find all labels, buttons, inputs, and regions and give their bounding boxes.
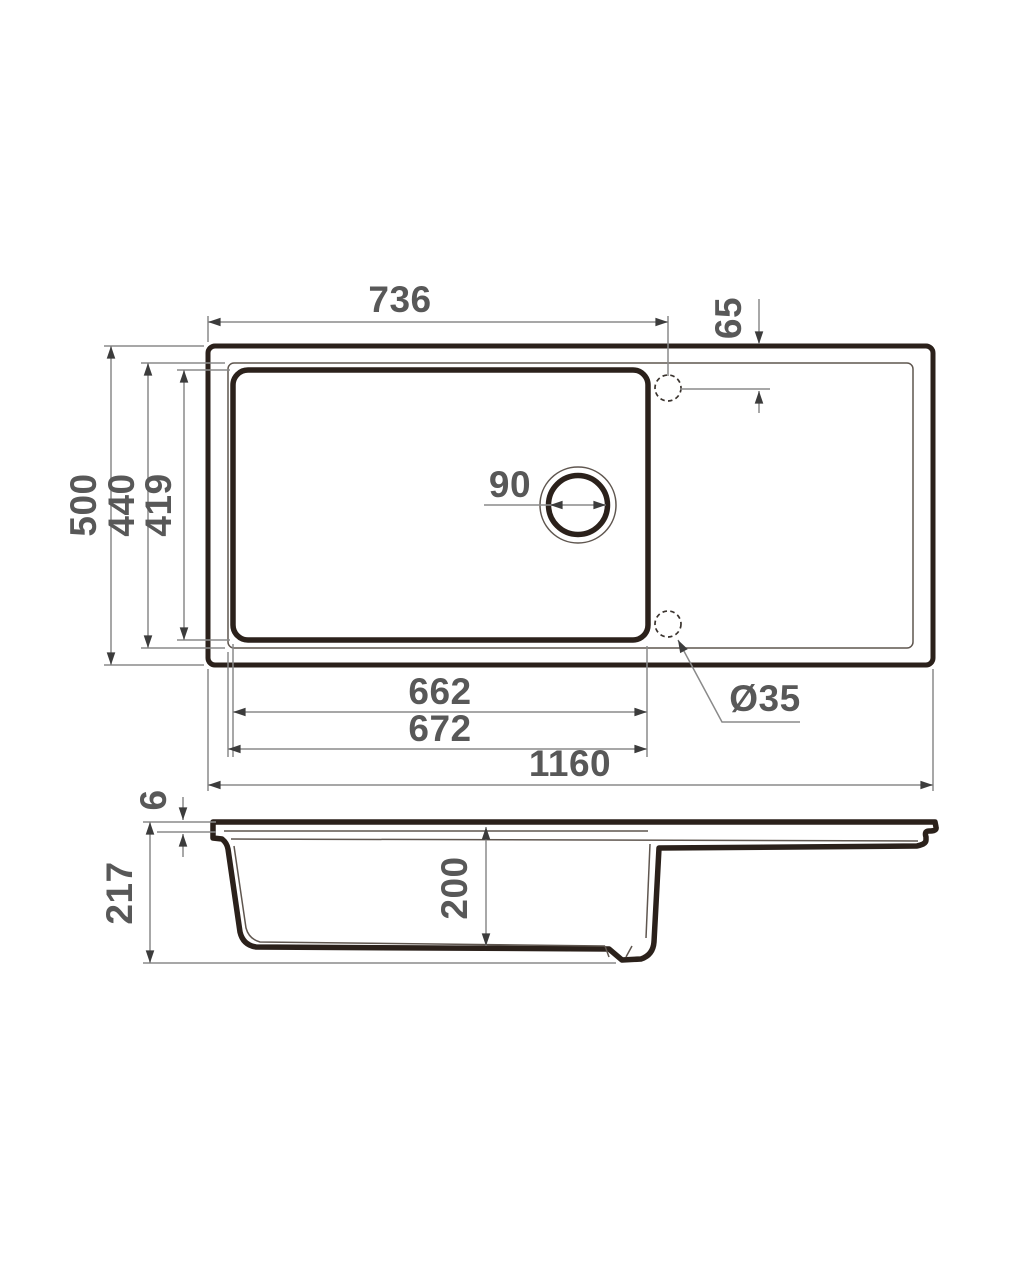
- dim-label-419: 419: [138, 473, 179, 536]
- dim-736: 736: [208, 279, 668, 376]
- dim-o35: Ø35: [678, 640, 801, 722]
- section-far-wall-line: [231, 839, 918, 841]
- dim-1160: 1160: [208, 669, 933, 791]
- section-view: [213, 822, 936, 960]
- dim-label-217: 217: [99, 861, 140, 924]
- section-bowl-inner-right: [646, 844, 650, 938]
- dim-90: 90: [484, 464, 606, 505]
- dim-label-672: 672: [408, 708, 471, 749]
- dim-label-500: 500: [63, 473, 104, 536]
- dim-label-6: 6: [133, 789, 174, 810]
- section-outline: [213, 822, 936, 960]
- technical-drawing-page: 736 65 500 440 419: [0, 0, 1024, 1265]
- dim-label-200: 200: [434, 856, 475, 919]
- dim-6: 6: [133, 789, 216, 857]
- dim-label-440: 440: [101, 473, 142, 536]
- dim-label-65: 65: [708, 297, 749, 339]
- dim-label-662: 662: [408, 671, 471, 712]
- dim-label-736: 736: [368, 279, 431, 320]
- section-bowl-inner-contour: [234, 846, 605, 946]
- dim-200: 200: [434, 827, 486, 946]
- sink-technical-drawing: 736 65 500 440 419: [0, 0, 1024, 1265]
- dim-217: 217: [99, 822, 616, 963]
- dim-label-1160: 1160: [529, 743, 611, 784]
- tap-hole-bottom: [655, 611, 681, 637]
- tap-hole-top: [655, 375, 681, 401]
- dim-label-o35: Ø35: [729, 678, 800, 719]
- dimensions: 736 65 500 440 419: [63, 279, 933, 963]
- dim-65: 65: [680, 297, 770, 413]
- dim-419: 419: [138, 370, 230, 640]
- dim-label-90: 90: [489, 464, 531, 505]
